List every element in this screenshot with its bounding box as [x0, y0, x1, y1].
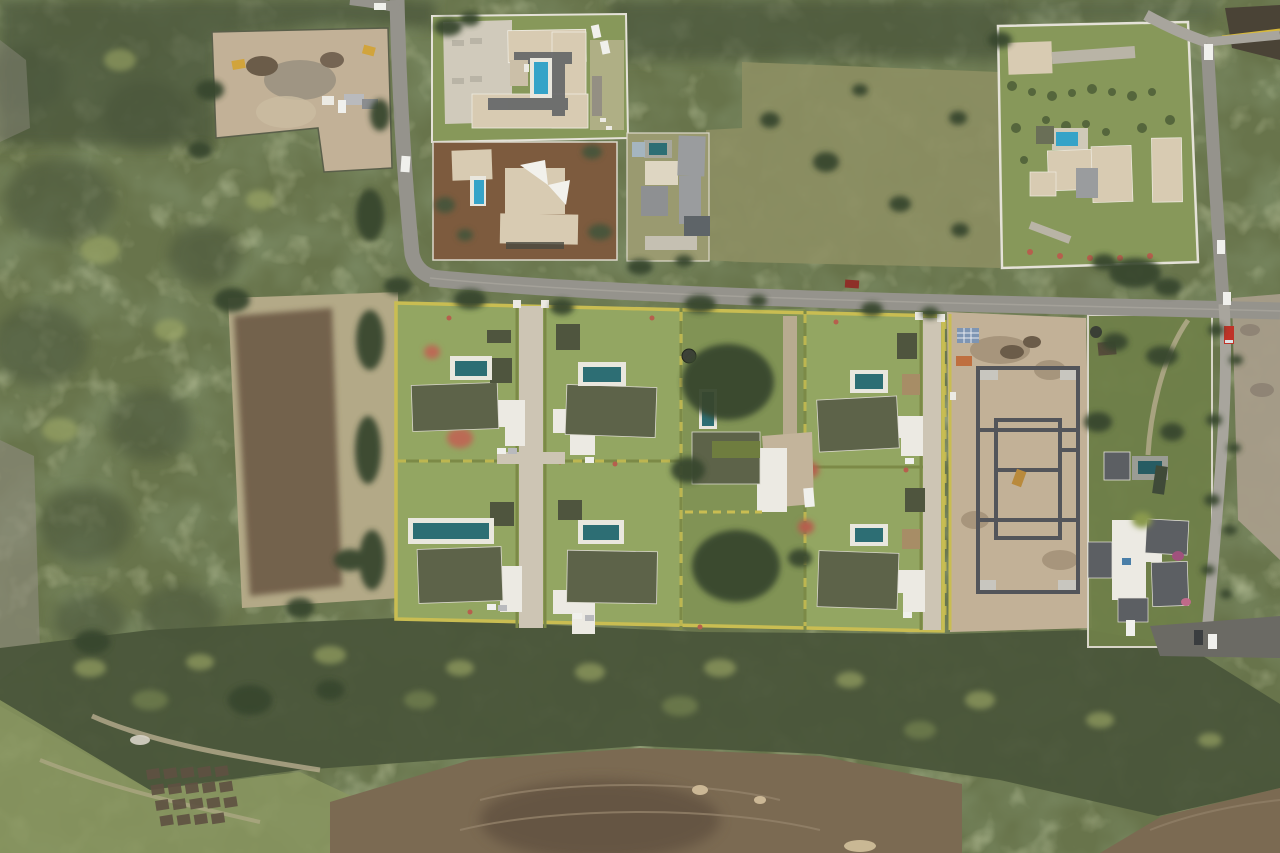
estate-top-right	[998, 22, 1198, 268]
gable-roof	[677, 136, 705, 177]
guest-roof	[451, 149, 492, 180]
aerial-photo-stage	[0, 0, 1280, 853]
gate-post	[513, 300, 521, 308]
concrete-apron	[645, 236, 697, 250]
estate-right	[1088, 315, 1212, 647]
white-car-top	[374, 3, 386, 10]
dirt-pile	[1240, 324, 1260, 336]
white-car-estate-right	[1126, 620, 1135, 636]
portable-toilet	[950, 392, 956, 400]
pool-villa-a1	[455, 361, 487, 376]
flat-roof	[641, 186, 668, 216]
aerial-photo	[0, 0, 1280, 853]
spoil-heap	[1000, 345, 1024, 359]
water-tank	[1090, 326, 1102, 338]
orange-container	[956, 356, 972, 366]
white-car-right-road	[1217, 240, 1225, 254]
skylight	[1122, 558, 1131, 565]
palm-tree	[1132, 512, 1152, 528]
dirt-pile	[1250, 383, 1274, 397]
pool-villa-a2	[413, 523, 489, 539]
spoil-heap	[320, 52, 344, 68]
roof-villa-b2	[567, 550, 658, 604]
white-car-left-road	[400, 156, 410, 173]
gate-post	[541, 300, 549, 308]
roof-villa-d2	[817, 551, 899, 610]
gravel-drive	[1052, 52, 1135, 58]
pool-villa-b1	[583, 367, 621, 382]
roof-villa-d1	[817, 396, 900, 452]
property-brown-yard	[433, 142, 617, 260]
roof-gray-section	[1076, 168, 1098, 198]
big-tree-middle-lot	[682, 344, 774, 420]
estate-pool	[1056, 132, 1078, 146]
dark-red-car-road	[845, 280, 860, 289]
white-van-middle-lot	[803, 488, 815, 508]
roof-villa-b1	[565, 384, 657, 437]
pool-house-roof	[1104, 452, 1130, 480]
green-metal-roof	[712, 441, 760, 458]
long-roof	[500, 213, 579, 244]
site-hut	[322, 96, 334, 105]
white-car-intersection	[1223, 292, 1231, 305]
debris	[130, 735, 150, 745]
villa-development	[395, 300, 945, 634]
roof-villa-a2	[417, 547, 503, 604]
dark-roof	[684, 216, 710, 236]
pool-pavilion	[1036, 126, 1054, 144]
site-container	[344, 94, 364, 105]
white-car-apron	[1208, 634, 1217, 649]
middle-house-white-roof	[757, 448, 787, 512]
spoil-heap	[246, 56, 278, 76]
garage-roof	[1007, 41, 1052, 75]
dark-car-apron	[1194, 630, 1203, 645]
property-gray-roofs	[627, 133, 710, 261]
sand-patch	[256, 96, 316, 128]
roof-villa-a1	[411, 383, 499, 432]
pool-pavilion	[510, 60, 528, 86]
spoil-heap	[1023, 336, 1041, 348]
plunge-pool	[649, 143, 667, 155]
truck-windshield	[1225, 340, 1233, 343]
white-van-right-road	[1204, 44, 1213, 60]
big-tree-middle-lot	[692, 530, 780, 602]
white-pickup-site	[338, 100, 346, 113]
pergola	[506, 242, 564, 249]
tilled-brown-swath	[234, 308, 342, 596]
glass-panel	[632, 142, 645, 157]
pool-villa-d1	[855, 374, 883, 389]
construction-site-right	[947, 312, 1092, 632]
pool-villa-b2	[583, 525, 619, 540]
small-pool	[474, 180, 484, 204]
debris	[692, 785, 708, 795]
site-shed-blue	[957, 328, 979, 343]
cream-flat-roof	[645, 161, 678, 185]
wood-pile	[844, 840, 876, 852]
estate-garden	[1088, 315, 1212, 647]
debris	[754, 796, 766, 804]
estate-pool	[534, 62, 548, 94]
pool-villa-d2	[855, 528, 883, 542]
middle-lot-path	[783, 316, 797, 438]
